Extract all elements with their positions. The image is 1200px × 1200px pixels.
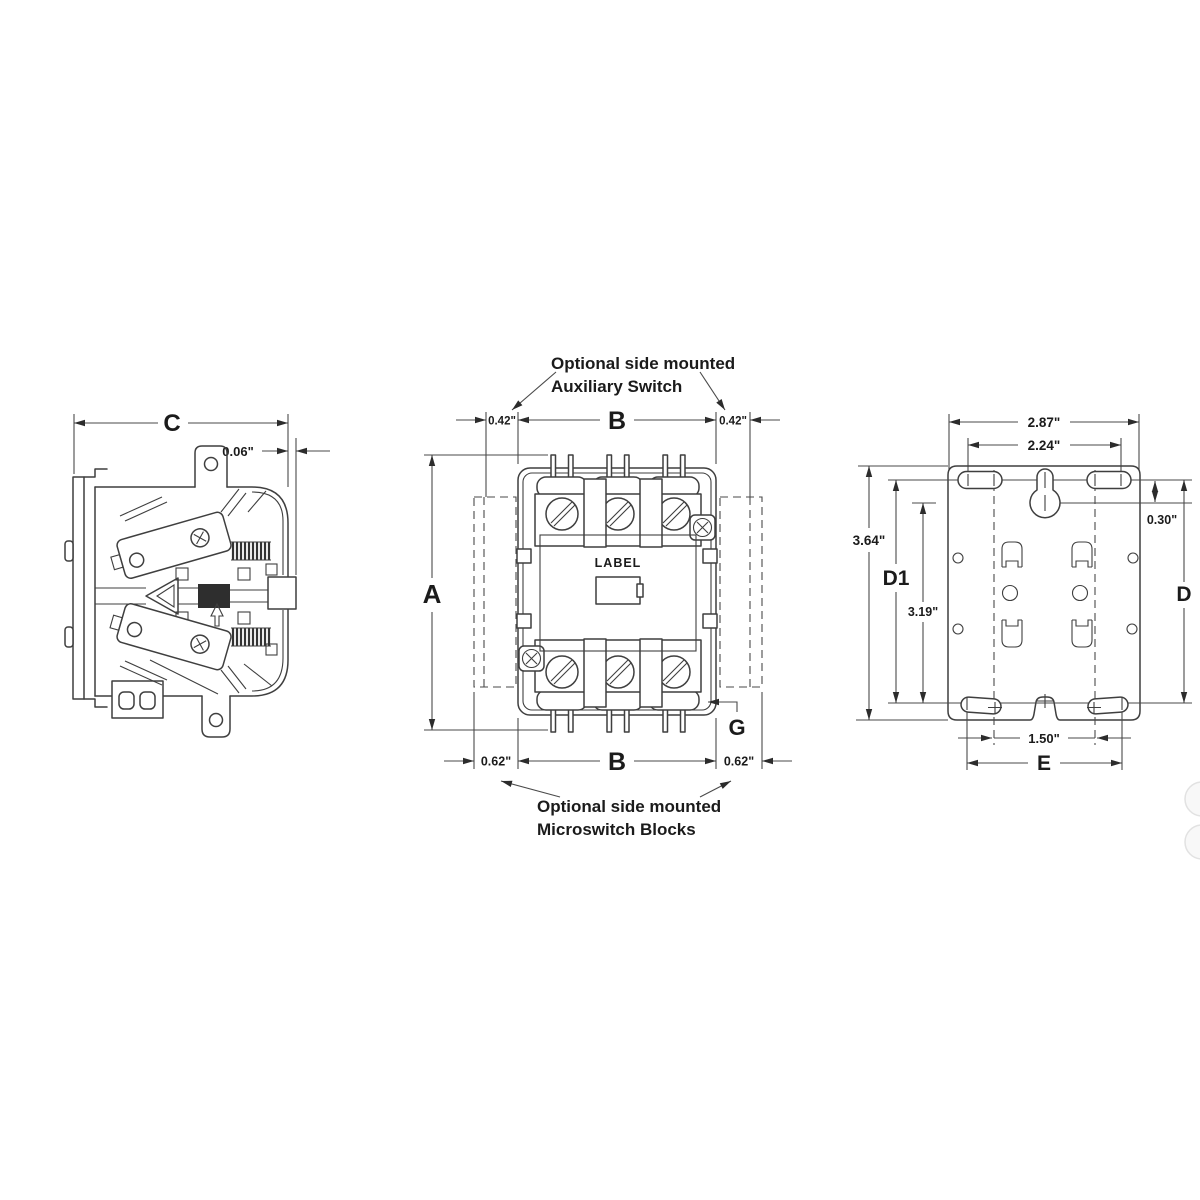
plate-top-dims: 2.87" 2.24" [949, 414, 1139, 473]
terminals-top [535, 455, 701, 547]
technical-drawing-svg: C 0.06" [0, 0, 1200, 1200]
plate-holes [953, 553, 1138, 634]
dim-062-right: 0.62" [724, 755, 754, 769]
armature-core [198, 584, 230, 608]
side-view-microswitch-top [107, 511, 232, 582]
label-area: LABEL [540, 535, 696, 651]
note-microswitch-blocks: Optional side mounted Microswitch Blocks [501, 781, 731, 839]
dim-042-right: 0.42" [719, 416, 747, 428]
terminal-screws-bottom [546, 656, 690, 688]
note-auxiliary-switch: Optional side mounted Auxiliary Switch [512, 354, 735, 410]
label-text: LABEL [595, 556, 642, 570]
dim-224-label: 2.24" [1028, 438, 1061, 453]
terminal-screws-top [546, 498, 690, 530]
keyhole-slot [1030, 469, 1060, 518]
clip-cutouts-upper [1002, 542, 1092, 567]
plate-bottom-dims: 1.50" E [958, 712, 1131, 775]
dim-g-label: G [728, 715, 745, 740]
drawing-canvas: C 0.06" [0, 0, 1200, 1200]
mounting-plate-view: 2.87" 2.24" [853, 414, 1192, 775]
front-view-a-dim: A [423, 455, 548, 730]
dim-030-label: 0.30" [1147, 513, 1177, 527]
assembly-screw-top-right [690, 515, 715, 540]
plate-right-dims: 0.30" D [1147, 480, 1192, 703]
dim-b-bottom: B [608, 748, 626, 776]
contactor-body: LABEL [517, 455, 717, 732]
note-aux-line2: Auxiliary Switch [551, 377, 682, 396]
top-slot-right [1087, 472, 1131, 489]
dim-062-left: 0.62" [481, 755, 511, 769]
dim-287-label: 2.87" [1028, 415, 1061, 430]
dim-150-label: 1.50" [1028, 731, 1059, 746]
g-dim: G [708, 702, 746, 740]
page-edge-artifacts [1185, 782, 1200, 859]
dim-e-label: E [1037, 752, 1051, 775]
dim-042-left: 0.42" [488, 416, 516, 428]
note-micro-line1: Optional side mounted [537, 797, 721, 816]
dim-a-label: A [423, 579, 442, 609]
spring-hatch-bottom [231, 628, 271, 646]
side-view-case [95, 446, 288, 737]
bottom-slot-right [1087, 697, 1128, 715]
dim-d-label: D [1176, 583, 1191, 606]
dim-364-label: 3.64" [853, 533, 886, 548]
note-aux-line1: Optional side mounted [551, 354, 735, 373]
clip-cutouts-lower [1002, 620, 1092, 647]
bottom-slot-left [961, 697, 1002, 715]
dim-d1-label: D1 [883, 567, 910, 590]
dim-c-label: C [163, 410, 180, 437]
dim-319-label: 3.19" [908, 605, 938, 619]
side-view: C 0.06" [65, 410, 330, 737]
terminals-bottom [535, 639, 701, 732]
coil-symbol [596, 577, 640, 604]
spring-hatch-top [231, 542, 271, 560]
plate-left-dims: 3.64" D1 3.19" [853, 466, 948, 720]
top-slot-left [958, 472, 1002, 489]
dim-b-top: B [608, 407, 626, 435]
note-micro-line2: Microswitch Blocks [537, 820, 696, 839]
front-view: Optional side mounted Auxiliary Switch 0… [423, 354, 792, 839]
